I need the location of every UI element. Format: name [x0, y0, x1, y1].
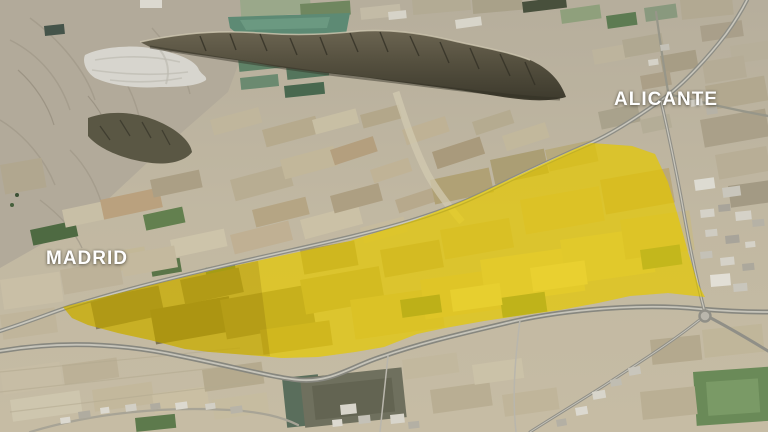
satellite-map: MADRID ALICANTE [0, 0, 768, 432]
label-alicante: ALICANTE [614, 90, 718, 109]
map-image [0, 0, 768, 432]
label-madrid: MADRID [46, 249, 128, 268]
